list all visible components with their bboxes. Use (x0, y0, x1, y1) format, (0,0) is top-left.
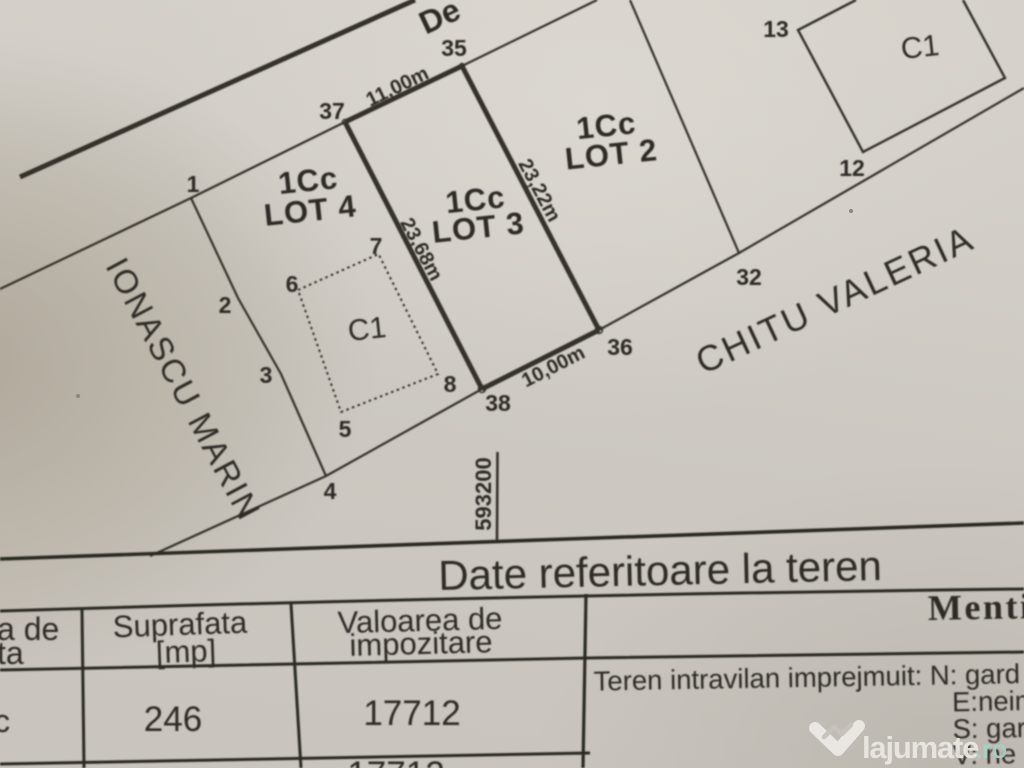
svg-text:38: 38 (485, 390, 511, 416)
svg-text:C1: C1 (899, 29, 941, 66)
svg-text:ta: ta (0, 635, 24, 671)
svg-text:35: 35 (441, 35, 467, 61)
svg-text:lajumate: lajumate (862, 730, 979, 765)
svg-text:17712: 17712 (347, 755, 444, 768)
svg-text:.ro: .ro (975, 734, 1007, 764)
svg-text:C1: C1 (346, 311, 388, 348)
svg-text:Mentiuni: Mentiuni (928, 585, 1024, 628)
svg-text:Date referitoare la teren: Date referitoare la teren (438, 542, 883, 599)
svg-text:13: 13 (763, 16, 789, 42)
svg-text:12: 12 (839, 155, 865, 181)
svg-text:4: 4 (324, 478, 337, 504)
svg-text:593200: 593200 (471, 457, 496, 530)
svg-text:7: 7 (370, 233, 383, 259)
svg-text:1: 1 (187, 171, 200, 197)
svg-text:3: 3 (260, 362, 273, 388)
svg-text:17712: 17712 (363, 694, 460, 733)
svg-text:[mp]: [mp] (155, 633, 216, 670)
svg-text:5: 5 (339, 416, 352, 442)
svg-text:8: 8 (444, 371, 457, 397)
svg-text:c: c (0, 703, 10, 739)
svg-text:32: 32 (736, 264, 762, 290)
svg-text:36: 36 (607, 334, 633, 360)
svg-text:6: 6 (286, 271, 299, 297)
svg-text:impozitare: impozitare (349, 624, 493, 663)
svg-text:37: 37 (319, 98, 345, 124)
svg-text:2: 2 (219, 292, 232, 318)
svg-text:246: 246 (144, 700, 202, 739)
